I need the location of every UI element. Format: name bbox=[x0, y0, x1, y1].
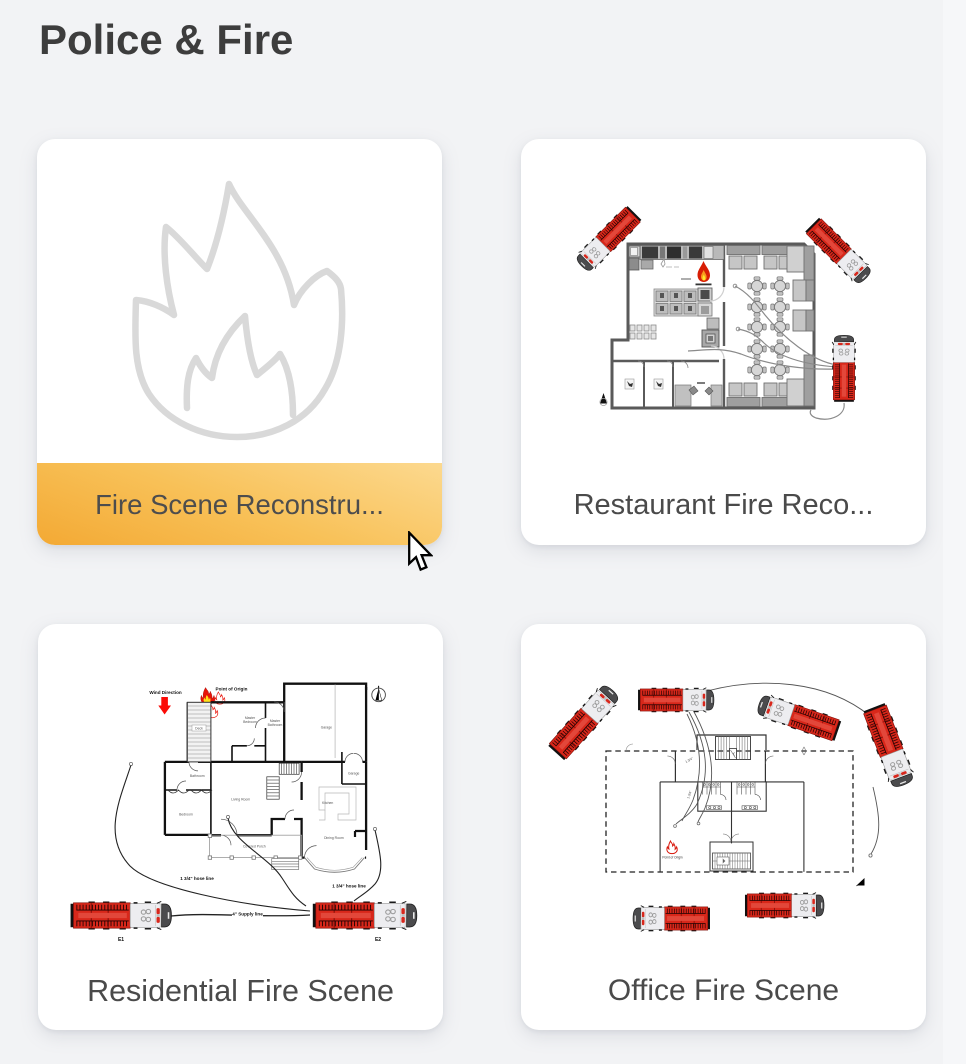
svg-text:Bathroom: Bathroom bbox=[190, 774, 205, 778]
svg-text:Garage: Garage bbox=[321, 726, 332, 730]
svg-text:1 3/4" hose line: 1 3/4" hose line bbox=[332, 884, 366, 889]
svg-text:Bedroom: Bedroom bbox=[179, 813, 193, 817]
svg-text:Garage: Garage bbox=[348, 772, 359, 776]
svg-text:Deck: Deck bbox=[195, 727, 203, 731]
svg-text:Bathroom: Bathroom bbox=[268, 723, 283, 727]
svg-text:E2: E2 bbox=[375, 937, 381, 943]
svg-text:Wind Direction: Wind Direction bbox=[149, 690, 182, 695]
svg-text:4" Supply line: 4" Supply line bbox=[232, 912, 263, 917]
svg-text:Point of Origin: Point of Origin bbox=[216, 687, 248, 692]
svg-text:Dining Room: Dining Room bbox=[324, 836, 344, 840]
svg-text:E1: E1 bbox=[118, 937, 124, 943]
svg-text:Living Room: Living Room bbox=[231, 798, 250, 802]
svg-text:Kitchen: Kitchen bbox=[322, 801, 333, 805]
svg-text:Bedroom: Bedroom bbox=[243, 720, 257, 724]
svg-text:1 3/4" hose line: 1 3/4" hose line bbox=[180, 876, 214, 881]
svg-text:Point of Origin: Point of Origin bbox=[662, 856, 682, 860]
